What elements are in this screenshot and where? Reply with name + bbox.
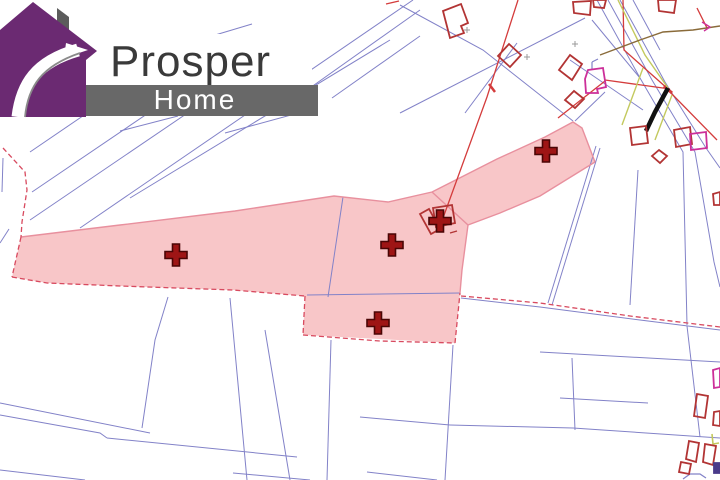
parcel-boundary-line	[465, 43, 517, 113]
map-line-line_red	[386, 1, 399, 4]
parcel-boundary-line	[327, 340, 331, 480]
parcel-boundary-line	[400, 5, 573, 121]
map-line-line_khaki	[622, 68, 643, 125]
parcel-boundary-line	[107, 438, 297, 457]
map-line-line_red	[668, 90, 717, 140]
building-outline	[658, 0, 676, 13]
building-outline	[713, 411, 720, 426]
highlighted-parcel	[12, 122, 595, 343]
building-outline	[713, 368, 720, 388]
parcel-boundary-line	[633, 0, 660, 50]
map-line-line_khaki	[712, 434, 719, 444]
building-outline	[652, 150, 667, 163]
parcel-boundary-line	[445, 345, 453, 480]
building-outline	[703, 444, 716, 465]
highlight-dashed-boundary	[461, 296, 720, 327]
building-outline	[443, 4, 468, 38]
building-outline	[714, 463, 720, 473]
parcel-boundary-line	[300, 10, 420, 95]
parcel-boundary-line	[2, 158, 3, 192]
building-outline	[679, 462, 691, 474]
parcel-boundary-line	[461, 298, 720, 330]
building-outline	[573, 1, 591, 15]
parcel-boundary-line	[230, 298, 247, 480]
highlight-dashed-boundary	[3, 148, 27, 237]
parcel-boundary-line	[367, 472, 437, 480]
parcel-boundary-line	[630, 170, 638, 305]
parcel-boundary-line	[360, 417, 450, 425]
parcel-boundary-line	[0, 229, 9, 243]
parcel-boundary-line	[120, 116, 178, 131]
building-outline	[694, 394, 708, 418]
parcel-boundary-line	[572, 358, 575, 430]
logo-house-icon	[0, 0, 105, 122]
map-line-parcel_line	[592, 59, 598, 62]
cadastral-map-page: Prosper Home	[0, 0, 720, 480]
parcel-boundary-line	[687, 326, 700, 437]
logo-title: Prosper	[110, 40, 271, 84]
map-line-parcel_line	[683, 474, 706, 479]
map-line-line_khaki	[655, 95, 672, 140]
parcel-boundary-line	[400, 18, 585, 113]
parcel-boundary-line	[142, 297, 168, 428]
building-outline	[559, 55, 582, 80]
parcel-boundary-line	[540, 352, 720, 362]
parcel-boundary-line	[233, 473, 310, 480]
building-outline	[686, 441, 699, 462]
building-outline	[713, 192, 720, 205]
parcel-boundary-line	[0, 470, 85, 480]
parcel-boundary-line	[450, 425, 720, 438]
parcel-boundary-line	[265, 330, 290, 480]
parcel-boundary-line	[0, 415, 107, 438]
